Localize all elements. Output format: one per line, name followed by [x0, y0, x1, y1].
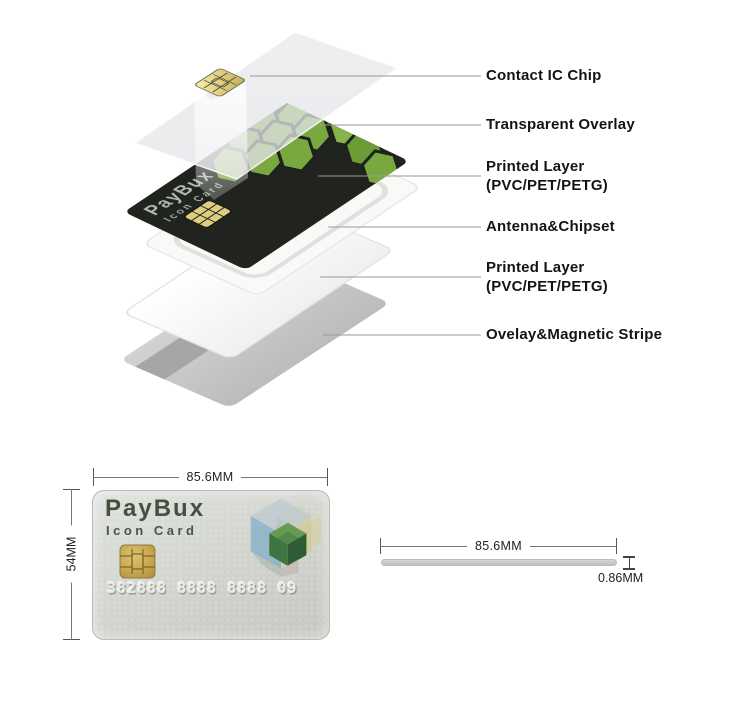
label-contact-ic-chip: Contact IC Chip	[486, 67, 602, 86]
card-chip-graphic	[119, 544, 156, 579]
label-overlay-magnetic-stripe: Ovelay&Magnetic Stripe	[486, 326, 662, 345]
card-width-value: 85.6MM	[179, 470, 242, 484]
card-width-dimension: 85.6MM	[93, 469, 327, 485]
label-antenna-chipset: Antenna&Chipset	[486, 218, 615, 237]
card-subtitle: Icon Card	[106, 523, 197, 538]
cube-logo-graphic	[237, 494, 325, 578]
label-transparent-overlay: Transparent Overlay	[486, 116, 635, 135]
side-width-value: 85.6MM	[467, 539, 530, 553]
front-card: PayBux Icon Card 382888 8888 8888 09	[92, 490, 330, 640]
label-printed-layer-top: Printed Layer (PVC/PET/PETG)	[486, 158, 608, 195]
dim-tick-top-right	[327, 468, 328, 486]
card-height-dimension: 54MM	[64, 526, 80, 583]
card-number: 382888 8888 8888 09	[107, 579, 298, 597]
side-width-dimension: 85.6MM	[380, 538, 617, 554]
card-thickness-value: 0.86MM	[598, 571, 643, 585]
chip-light-beam	[194, 82, 248, 200]
label-printed-layer-bottom: Printed Layer (PVC/PET/PETG)	[486, 259, 608, 296]
card-logo	[237, 494, 325, 578]
card-height-value: 54MM	[65, 537, 79, 572]
thickness-indicator-icon	[623, 556, 635, 570]
exploded-layers-diagram: PayBux Icon Card	[0, 0, 747, 445]
card-chip	[119, 544, 156, 579]
smart-card-structure-page: PayBux Icon Card	[0, 0, 747, 712]
card-side-profile	[381, 559, 617, 566]
card-brand: PayBux	[105, 495, 205, 523]
